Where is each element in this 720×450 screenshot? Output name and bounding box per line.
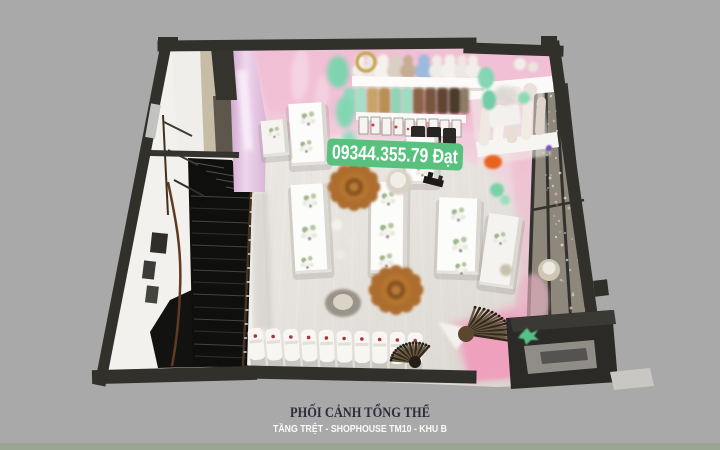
svg-text:PHỐI CẢNH TỔNG THỂ: PHỐI CẢNH TỔNG THỂ — [290, 403, 430, 421]
svg-text:TẦNG TRỆT - SHOPHOUSE TM10 - K: TẦNG TRỆT - SHOPHOUSE TM10 - KHU B — [273, 422, 447, 435]
